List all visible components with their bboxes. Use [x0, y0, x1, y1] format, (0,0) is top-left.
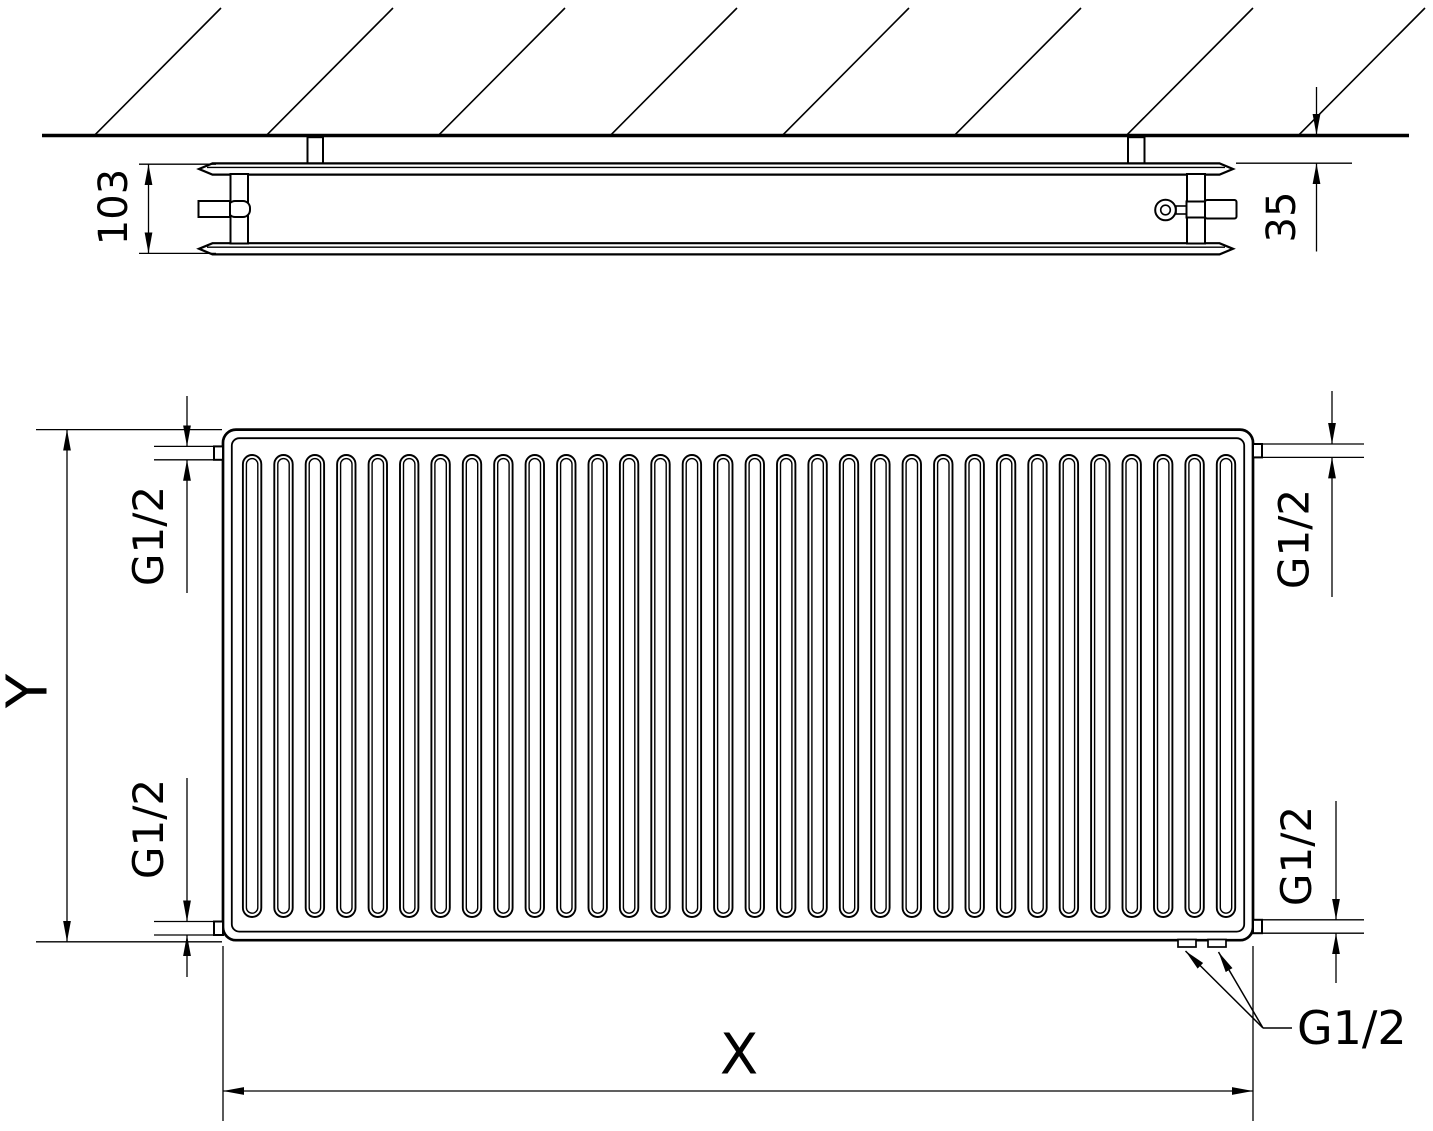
- depth-dim-label: 103: [91, 169, 137, 245]
- stub-bottom-right: [1253, 920, 1262, 933]
- connection-label-bottom: G1/2: [1297, 1001, 1407, 1055]
- plug-cap: [228, 201, 250, 217]
- vent-knob-outer: [1155, 200, 1176, 221]
- vent-head: [1205, 200, 1237, 219]
- connection-label-bottom-left: G1/2: [124, 779, 173, 879]
- width-dim-label: X: [720, 1023, 758, 1088]
- stub-top-left: [214, 446, 223, 459]
- wall-distance-dim-label: 35: [1259, 192, 1305, 243]
- stub-bottom-left: [214, 922, 223, 936]
- plug-body: [199, 201, 231, 217]
- connection-label-top-right: G1/2: [1270, 489, 1319, 589]
- drawing-canvas: 103 35 G1/2: [0, 0, 1433, 1131]
- bottom-tab-2: [1208, 940, 1226, 948]
- front-view: [154, 430, 1364, 947]
- radiator-outline: [223, 430, 1253, 941]
- height-dim-label: Y: [0, 673, 61, 709]
- front-panel: [199, 243, 1233, 254]
- rear-panel: [199, 163, 1233, 174]
- vent-stem: [1176, 206, 1187, 214]
- bracket-right: [1128, 137, 1145, 164]
- stub-top-right: [1253, 444, 1262, 457]
- connection-label-top-left: G1/2: [124, 486, 173, 586]
- vent-body: [1187, 202, 1206, 218]
- bottom-tab-1: [1178, 940, 1196, 948]
- connection-label-bottom-right: G1/2: [1272, 806, 1321, 906]
- bracket-left: [308, 137, 324, 164]
- radiator-technical-drawing: 103 35 G1/2: [0, 0, 1433, 1131]
